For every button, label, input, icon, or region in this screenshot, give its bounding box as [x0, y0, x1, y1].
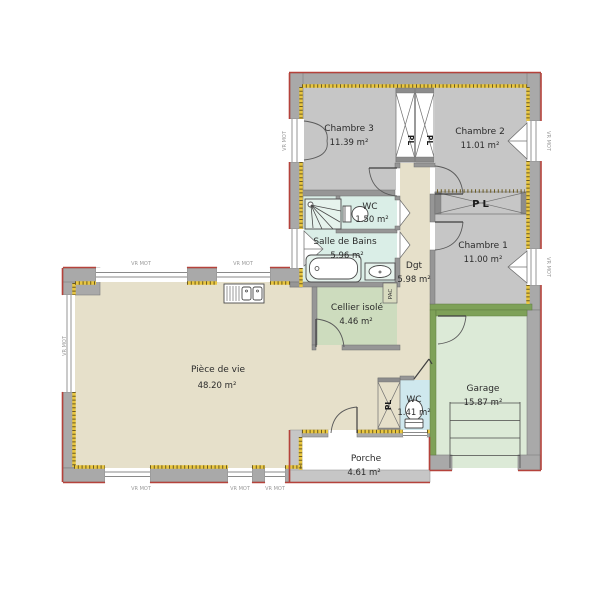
- room-area-wc-bottom: 1.41 m²: [397, 408, 430, 418]
- shutter-label-bottom-3: VR MOT: [265, 486, 286, 492]
- heat-pump-label: PAC: [388, 289, 394, 300]
- kitchen-sink: [224, 284, 264, 303]
- closet-label-2: PL: [425, 135, 434, 145]
- room-label-wc-top: WC: [362, 202, 377, 212]
- room-label-wc-bottom: WC: [406, 395, 421, 405]
- room-area-cellier: 4.46 m²: [339, 317, 372, 327]
- room-area-chambre2: 11.01 m²: [461, 141, 500, 151]
- shutter-label-chambre3: VR MOT: [282, 130, 288, 151]
- closet-pl-top: [396, 88, 434, 162]
- shutter-label-left: VR MOT: [62, 335, 68, 356]
- room-area-garage: 15.87 m²: [464, 398, 503, 408]
- room-label-chambre1: Chambre 1: [458, 241, 508, 251]
- room-area-porch: 4.61 m²: [347, 468, 380, 478]
- room-label-garage: Garage: [467, 384, 500, 394]
- closet-label-wide: PL: [472, 199, 492, 210]
- shutter-label-top-2: VR MOT: [233, 261, 254, 267]
- room-area-chambre1: 11.00 m²: [464, 255, 503, 265]
- room-area-living: 48.20 m²: [198, 381, 237, 391]
- shutter-label-chambre2: VR MOT: [545, 131, 551, 152]
- shutter-label-chambre1: VR MOT: [545, 257, 551, 278]
- room-label-bath: Salle de Bains: [313, 237, 377, 247]
- room-area-dgt: 5.98 m²: [397, 275, 430, 285]
- closet-label-bottom: PL: [384, 400, 393, 410]
- closet-label-1: PL: [406, 135, 415, 145]
- room-label-dgt: Dgt: [406, 261, 423, 271]
- shutter-label-top-1: VR MOT: [131, 261, 152, 267]
- shutter-label-bottom-1: VR MOT: [131, 486, 152, 492]
- room-label-living: Pièce de vie: [191, 364, 246, 375]
- room-living-floor: [75, 282, 312, 468]
- room-label-cellier: Cellier isolé: [331, 302, 384, 313]
- shutter-label-bottom-2: VR MOT: [230, 486, 251, 492]
- room-label-chambre3: Chambre 3: [324, 124, 374, 134]
- room-label-chambre2: Chambre 2: [455, 127, 505, 137]
- room-area-chambre3: 11.39 m²: [330, 138, 369, 148]
- washbasin: [365, 263, 395, 280]
- garage-door-recess: [450, 455, 520, 468]
- room-area-wc-top: 1.50 m²: [355, 215, 388, 225]
- shower: [305, 199, 341, 229]
- room-area-bath: 5.96 m²: [330, 251, 363, 261]
- floor-plan: Chambre 3 11.39 m² Chambre 2 11.01 m² Ch…: [0, 0, 603, 600]
- room-label-porch: Porche: [351, 454, 382, 464]
- floor-plan-drawing: Chambre 3 11.39 m² Chambre 2 11.01 m² Ch…: [0, 0, 603, 600]
